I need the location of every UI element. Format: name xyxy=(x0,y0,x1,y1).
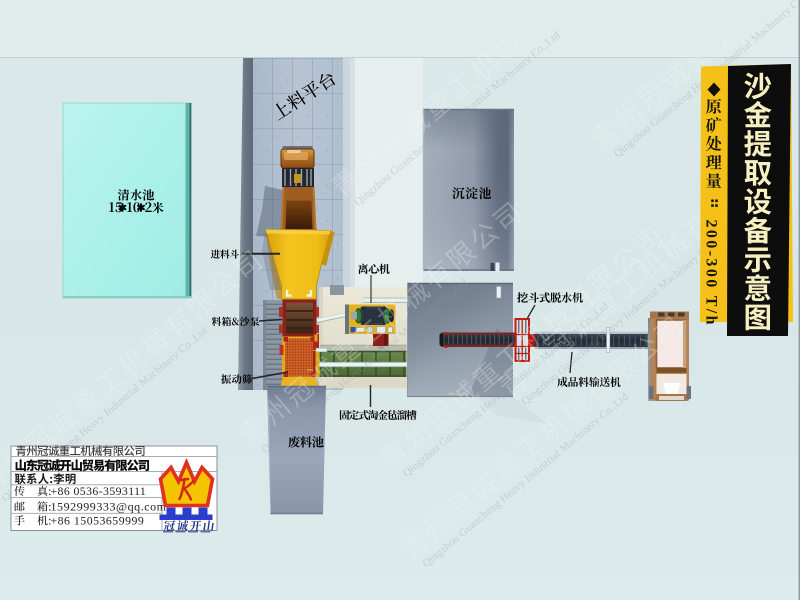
svg-text:+86 15053659999: +86 15053659999 xyxy=(51,514,145,528)
svg-text:+86 0536-3593111: +86 0536-3593111 xyxy=(51,484,147,498)
svg-text:200-300 T/h: 200-300 T/h xyxy=(703,220,720,327)
svg-text:1592999333@qq.com: 1592999333@qq.com xyxy=(51,500,167,514)
